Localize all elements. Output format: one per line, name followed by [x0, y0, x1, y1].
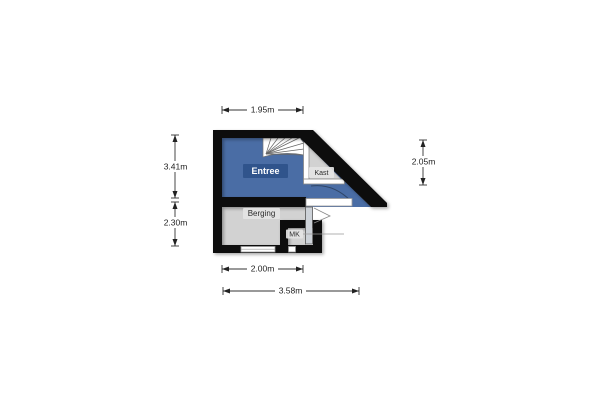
dimension-right: 2.05m: [409, 140, 438, 185]
dimension-left-lower: 2.30m: [161, 202, 190, 246]
left-wall: [213, 130, 222, 253]
floorplan-canvas: Entree Kast Berging MK 1.95m 3.41m: [0, 0, 600, 400]
floorplan-svg: Entree Kast Berging MK 1.95m 3.41m: [0, 0, 600, 400]
mk-label: MK: [289, 231, 300, 238]
staircase: [263, 138, 304, 157]
dimension-left-upper: 3.41m: [161, 135, 190, 198]
dim-left-upper-label: 3.41m: [164, 161, 188, 171]
mk-opening: [289, 247, 296, 253]
dim-left-lower-label: 2.30m: [164, 217, 188, 227]
berging-label: Berging: [248, 209, 276, 218]
kast-left-wall: [304, 142, 310, 183]
dim-top-label: 1.95m: [251, 104, 275, 114]
kast-bottom-wall: [304, 179, 345, 184]
dimension-bottom-inner: 2.00m: [222, 263, 303, 274]
berging-door-leaf: [306, 207, 313, 244]
entree-label: Entree: [251, 166, 279, 176]
front-door-opening: [306, 199, 352, 207]
top-wall: [213, 130, 309, 138]
dim-bottom-inner-label: 2.00m: [251, 263, 275, 273]
dimension-top: 1.95m: [222, 104, 303, 115]
dimension-bottom-outer: 3.58m: [223, 285, 359, 296]
dim-right-label: 2.05m: [412, 156, 436, 166]
kast-label: Kast: [314, 170, 328, 177]
dim-bottom-outer-label: 3.58m: [279, 285, 303, 295]
entree-bottom-wall: [213, 197, 306, 207]
